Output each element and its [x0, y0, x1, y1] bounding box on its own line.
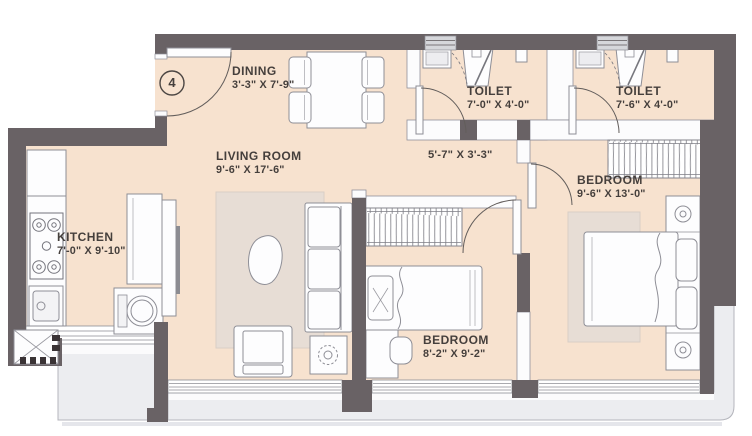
bedroom1-name: BEDROOM [423, 334, 489, 348]
refrigerator [127, 194, 162, 284]
room-label-kitchen: KITCHEN 7'-0" X 9'-10" [57, 231, 126, 258]
armchair [234, 326, 292, 377]
window-bedroom2 [538, 380, 700, 393]
bedroom2-dims: 9'-6" X 13'-0" [577, 188, 646, 202]
side-table-lamp [310, 336, 347, 374]
room-label-dining: DINING 3'-3" X 7'-9" [232, 65, 294, 92]
wardrobe-bedroom1 [366, 208, 462, 246]
floor-plan: 4 DINING 3'-3" X 7'-9" LIVING ROOM 9'-6"… [0, 0, 752, 436]
dining-name: DINING [232, 65, 294, 79]
toilet1-dims: 7'-0" X 4'-0" [467, 99, 529, 113]
bedroom1-dims: 8'-2" X 9'-2" [423, 348, 489, 362]
double-bed [584, 232, 697, 329]
window-bedroom1 [372, 380, 512, 393]
unit-number: 4 [160, 71, 184, 95]
room-label-bedroom1: BEDROOM 8'-2" X 9'-2" [423, 334, 489, 361]
room-label-toilet2: TOILET 7'-6" X 4'-0" [616, 85, 678, 112]
living-dims: 9'-6" X 17'-6" [216, 164, 302, 178]
room-label-bedroom2: BEDROOM 9'-6" X 13'-0" [577, 174, 646, 201]
kitchen-name: KITCHEN [57, 231, 126, 245]
dining-table [307, 52, 366, 128]
toilet1-name: TOILET [467, 85, 529, 99]
service-duct [14, 330, 60, 364]
toilet2-name: TOILET [616, 85, 678, 99]
single-bed [362, 266, 482, 330]
room-label-living: LIVING ROOM 9'-6" X 17'-6" [216, 150, 302, 177]
kitchen-dims: 7'-0" X 9'-10" [57, 245, 126, 259]
sink [29, 286, 63, 326]
toilet2-dims: 7'-6" X 4'-0" [616, 99, 678, 113]
living-name: LIVING ROOM [216, 150, 302, 164]
sofa [305, 203, 352, 332]
window-living [168, 380, 342, 393]
dining-dims: 3'-3" X 7'-9" [232, 79, 294, 93]
bedroom2-name: BEDROOM [577, 174, 646, 188]
passage-dims: 5'-7" X 3'-3" [428, 149, 493, 163]
floor-plan-drawing [0, 0, 752, 436]
room-label-passage: 5'-7" X 3'-3" [428, 149, 493, 163]
room-label-toilet1: TOILET 7'-0" X 4'-0" [467, 85, 529, 112]
